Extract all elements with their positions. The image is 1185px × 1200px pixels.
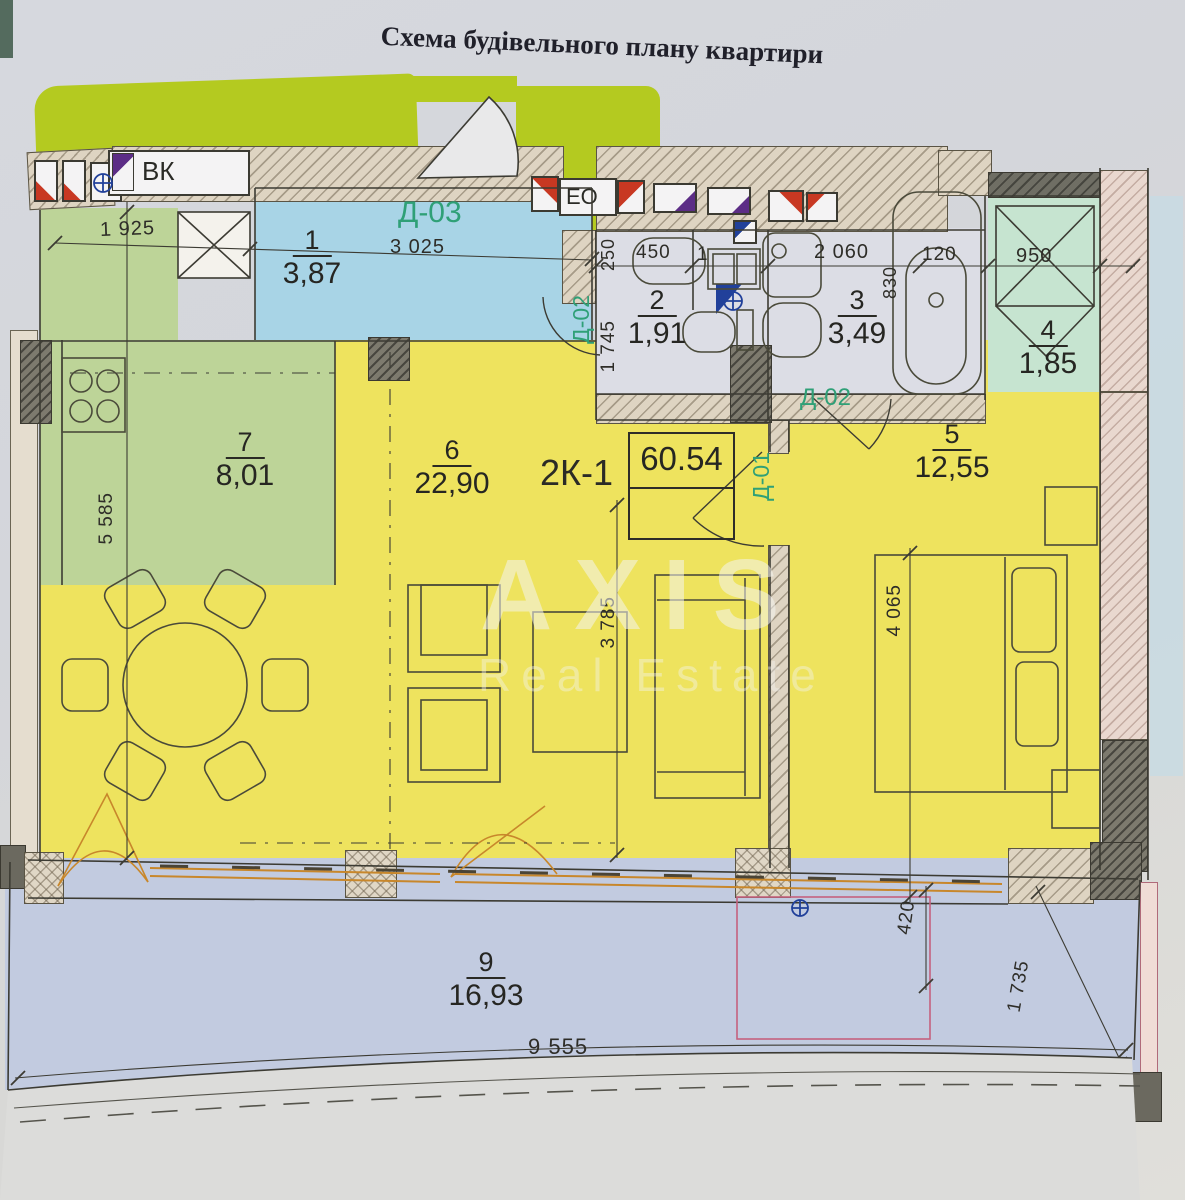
- dim-830: 830: [880, 266, 901, 299]
- watermark-realestate: Real Estate: [478, 648, 826, 702]
- dim-4065: 4 065: [884, 584, 906, 637]
- room-label-4: 4 1,85: [1019, 316, 1077, 380]
- total-area-box: 60.54: [628, 432, 735, 540]
- room-label-3: 3 3,49: [828, 286, 886, 350]
- dim-950: 950: [1016, 245, 1052, 268]
- watermark-axis: AXIS: [480, 538, 801, 653]
- room-label-2: 2 1,91: [628, 286, 686, 350]
- dim-9555: 9 555: [528, 1034, 588, 1060]
- room-label-7: 7 8,01: [216, 428, 274, 492]
- dim-3025: 3 025: [390, 236, 445, 259]
- door-marker-d03: Д-03: [398, 196, 462, 230]
- dim-120: 120: [922, 244, 957, 266]
- dim-5585: 5 585: [96, 492, 118, 545]
- dim-1745: 1 745: [598, 320, 620, 373]
- door-marker-d02-left: Д-02: [568, 295, 595, 344]
- dim-2060: 2 060: [814, 241, 869, 264]
- door-marker-d02-right: Д-02: [800, 384, 851, 412]
- dim-partial-1: 1: [697, 244, 709, 266]
- dim-1925: 1 925: [100, 217, 156, 242]
- dim-250: 250: [598, 238, 619, 271]
- dim-450: 450: [636, 242, 671, 264]
- total-area-value: 60.54: [630, 434, 733, 489]
- door-marker-d01: Д-01: [748, 452, 775, 501]
- room-label-6: 6 22,90: [414, 436, 489, 500]
- floor-plan-photo: Схема будівельного плану квартири ВК ЕО: [0, 0, 1185, 1200]
- room-label-5: 5 12,55: [914, 420, 989, 484]
- unit-label: 2К-1: [540, 452, 613, 494]
- room-label-9: 9 16,93: [448, 948, 523, 1012]
- room-label-1: 1 3,87: [283, 226, 341, 290]
